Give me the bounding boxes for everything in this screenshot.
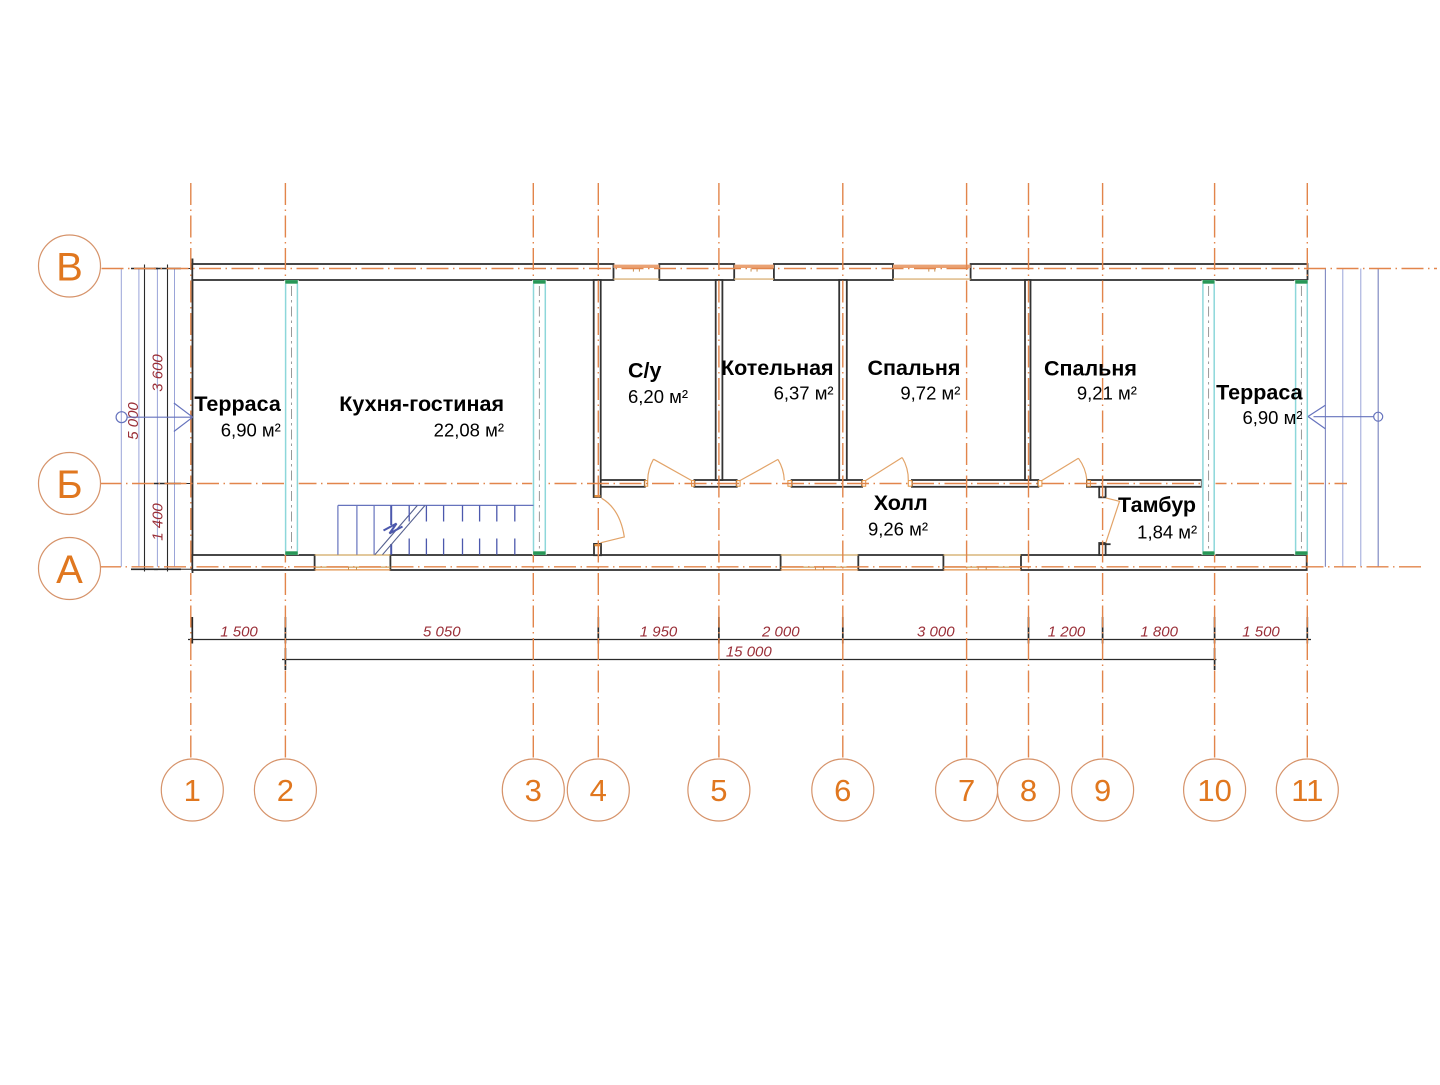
svg-text:2 000: 2 000	[761, 623, 800, 640]
svg-text:Холл: Холл	[874, 491, 928, 515]
svg-text:1: 1	[184, 773, 201, 808]
svg-text:3 600: 3 600	[149, 354, 166, 392]
svg-text:1 950: 1 950	[640, 623, 678, 640]
svg-text:Терраса: Терраса	[194, 392, 281, 416]
svg-text:1 800: 1 800	[1140, 623, 1178, 640]
svg-text:2: 2	[277, 773, 294, 808]
svg-text:Кухня-гостиная: Кухня-гостиная	[339, 392, 504, 416]
svg-text:3 000: 3 000	[917, 623, 955, 640]
svg-text:Б: Б	[56, 463, 82, 507]
svg-text:6,20 м²: 6,20 м²	[628, 386, 688, 407]
svg-text:4: 4	[590, 773, 607, 808]
svg-text:6,90 м²: 6,90 м²	[1242, 407, 1302, 428]
svg-text:11: 11	[1291, 773, 1323, 808]
svg-text:А: А	[56, 548, 83, 592]
svg-text:9,26 м²: 9,26 м²	[868, 518, 928, 539]
svg-text:В: В	[56, 246, 83, 290]
svg-text:9,72 м²: 9,72 м²	[900, 383, 960, 404]
svg-text:Котельная: Котельная	[721, 356, 834, 380]
svg-text:5: 5	[710, 773, 727, 808]
svg-text:С/у: С/у	[628, 359, 662, 383]
svg-text:7: 7	[958, 773, 975, 808]
svg-text:5 050: 5 050	[423, 623, 461, 640]
svg-text:22,08 м²: 22,08 м²	[434, 419, 504, 440]
svg-text:3: 3	[525, 773, 542, 808]
svg-text:1,84 м²: 1,84 м²	[1137, 522, 1197, 543]
svg-text:6,90 м²: 6,90 м²	[221, 419, 281, 440]
svg-text:Тамбур: Тамбур	[1118, 493, 1196, 517]
svg-text:Спальня: Спальня	[868, 356, 961, 380]
svg-text:1 200: 1 200	[1048, 623, 1086, 640]
svg-text:Спальня: Спальня	[1044, 357, 1137, 381]
svg-text:1 500: 1 500	[1242, 623, 1280, 640]
svg-text:10: 10	[1197, 773, 1231, 808]
svg-text:6: 6	[834, 773, 851, 808]
svg-text:1 500: 1 500	[220, 623, 258, 640]
svg-text:5 000: 5 000	[125, 402, 142, 440]
svg-text:9: 9	[1094, 773, 1111, 808]
svg-text:1 400: 1 400	[149, 503, 166, 541]
svg-text:9,21 м²: 9,21 м²	[1077, 383, 1137, 404]
svg-text:6,37 м²: 6,37 м²	[774, 383, 834, 404]
svg-text:Терраса: Терраса	[1216, 380, 1303, 404]
svg-text:8: 8	[1020, 773, 1037, 808]
svg-text:15 000: 15 000	[726, 644, 773, 661]
